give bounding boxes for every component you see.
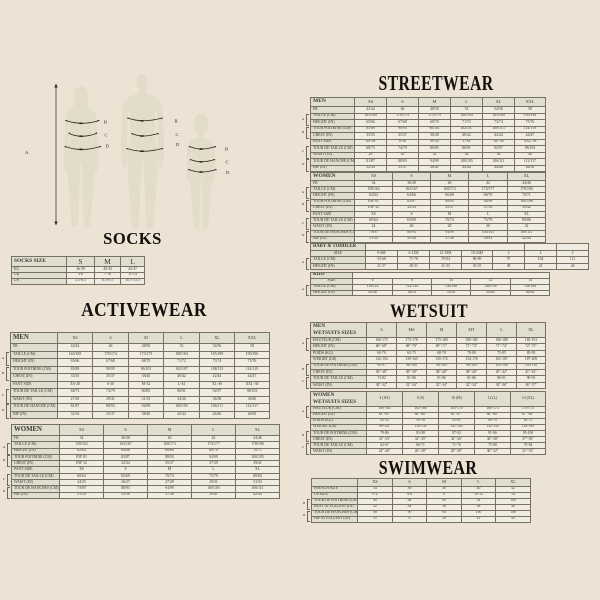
svg-text:D: D: [176, 142, 180, 147]
svg-text:C: C: [226, 159, 229, 164]
svg-text:B: B: [175, 118, 178, 123]
svg-text:D: D: [106, 143, 110, 148]
svg-text:B: B: [225, 146, 228, 151]
svg-text:B: B: [104, 119, 107, 124]
svg-text:D: D: [226, 170, 230, 175]
svg-text:A: A: [25, 150, 29, 155]
svg-text:C: C: [105, 132, 108, 137]
svg-text:C: C: [176, 132, 179, 137]
